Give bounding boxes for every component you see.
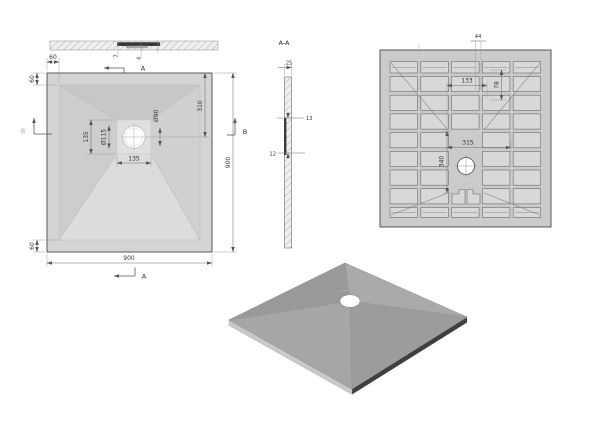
marker-label-a-top: A: [141, 65, 146, 73]
drawing-canvas: 7 4 60 60: [0, 0, 600, 424]
rib-pocket: [390, 189, 418, 204]
rib-pocket: [482, 151, 510, 166]
rib-pocket: [513, 133, 541, 148]
dim-label-7: 7: [114, 54, 120, 57]
dim-label-60-bottom: 60: [29, 242, 36, 250]
rib-pocket: [452, 114, 480, 129]
rib-pocket: [421, 133, 449, 148]
dim-label-900-right: 900: [225, 157, 232, 169]
rib-pocket: [390, 170, 418, 185]
rib-pocket: [482, 133, 510, 148]
rib-pocket: [390, 133, 418, 148]
dim-label-4: 4: [137, 56, 143, 60]
rib-pocket: [513, 170, 541, 185]
marker-label-a-bottom: A: [142, 273, 147, 281]
rib-pocket: [513, 114, 541, 129]
section-marker-a-bottom: A: [114, 268, 147, 281]
section-aa-view: A-A 25 13 12: [269, 39, 312, 248]
cad-drawing: 7 4 60 60: [0, 0, 600, 424]
isometric-view: [229, 263, 467, 395]
rib-pocket: [390, 114, 418, 129]
section-marker-b-right: B: [227, 118, 247, 136]
dim-label-133: 133: [461, 78, 473, 85]
dim-label-12: 12: [269, 152, 276, 158]
dim-label-dia115: Ø115: [101, 129, 108, 145]
rib-pocket: [390, 95, 418, 110]
dim-label-60-top: 60: [49, 54, 57, 61]
dim-label-60-left: 60: [29, 75, 36, 83]
dim-label-900-bottom: 900: [123, 255, 135, 262]
dim-label-78: 78: [494, 81, 501, 89]
marker-label-b-left: B: [21, 127, 25, 135]
plan-view: 60 60 135 Ø115 Ø90 310 135 900 60: [21, 54, 247, 281]
tray-profile: [117, 42, 160, 46]
dim-label-340: 340: [439, 156, 446, 168]
rib-pocket: [513, 189, 541, 204]
rib-pocket: [513, 95, 541, 110]
dim-label-dia90: Ø90: [153, 109, 160, 122]
rib-pocket: [482, 95, 510, 110]
rib-pocket: [421, 77, 449, 92]
front-elevation-view: 7 4: [50, 41, 218, 60]
rib-pocket: [421, 170, 449, 185]
rib-pocket: [452, 95, 480, 110]
rib-pocket: [390, 151, 418, 166]
dim-label-13: 13: [306, 116, 313, 122]
section-tray-profile: [284, 118, 286, 155]
dim-label-25: 25: [286, 61, 293, 67]
bottom-view: 44 133 78 315 340: [380, 34, 551, 227]
dim-label-135-bottom: 135: [128, 156, 140, 163]
rib-pocket: [482, 170, 510, 185]
rib-pocket: [513, 151, 541, 166]
tray-profile-shadow: [126, 46, 148, 48]
section-title: A-A: [279, 39, 291, 47]
section-cut-strip: [285, 77, 292, 248]
dim-label-135-left: 135: [83, 131, 90, 143]
dim-label-44: 44: [475, 34, 482, 40]
section-marker-a-top: A: [104, 65, 146, 74]
iso-drain-hole: [340, 295, 360, 308]
dim-label-315: 315: [462, 140, 474, 147]
dim-label-310: 310: [197, 100, 204, 112]
marker-label-b-right: B: [243, 128, 247, 136]
rib-pocket: [421, 114, 449, 129]
